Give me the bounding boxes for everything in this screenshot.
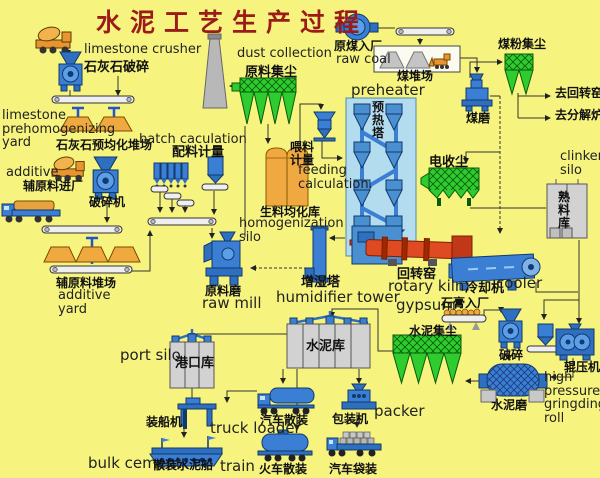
label-coal-dust-zh: 煤粉集尘	[498, 38, 546, 51]
label-raw-mill-en: raw mill	[202, 296, 262, 312]
label-homogenization-en: homogenization silo	[239, 217, 359, 244]
label-gypsum-crusher-zh: 破碎	[499, 349, 523, 362]
label-roller-press-en: high pressure gringding roll	[544, 371, 600, 426]
cement-mill-icon	[479, 364, 547, 402]
limestone-crusher-icon	[59, 52, 82, 91]
label-truck-bag-zh: 汽车袋装	[329, 463, 377, 476]
label-additive-yard-en: additive yard	[58, 289, 116, 316]
batch-bin-icon	[208, 157, 223, 183]
electrostatic-precipitator-icon	[421, 168, 479, 206]
label-additive-en: additive	[6, 166, 58, 180]
diagram-title: 水泥工艺生产过程	[96, 3, 368, 39]
gypsum-crusher-icon	[499, 309, 522, 348]
label-gypsum-zh: 石膏入厂	[441, 297, 489, 310]
label-raw-coal-zh: 原煤入厂	[334, 40, 382, 53]
label-additive-entry-zh: 辅原料进厂	[23, 180, 83, 193]
label-batch-calculation-zh: 配料计量	[172, 146, 224, 160]
label-feeding-en: feeding calculation.	[298, 164, 380, 191]
cement-process-diagram: 水泥工艺生产过程 limestone crusher 石灰石破碎 limesto…	[0, 0, 600, 478]
chimney-icon	[203, 34, 227, 108]
label-port-silo-zh: 港口库	[175, 357, 214, 371]
raw-dust-collector-icon	[232, 78, 296, 124]
label-limestone-crusher-zh: 石灰石破碎	[84, 61, 149, 75]
label-dust-collection-zh: 原料集尘	[245, 66, 297, 80]
label-dust-collection-en: dust collection	[237, 47, 332, 61]
label-to-rotary-kiln-zh: 去回转窑	[555, 87, 600, 100]
label-port-silo-en: port silo	[120, 348, 181, 364]
label-humidifier-en: humidifier tower	[276, 290, 400, 306]
label-ship-loader-zh: 装船机	[146, 416, 182, 429]
label-rotary-kiln-en: rotary kiln	[388, 279, 464, 295]
cement-dust-collector-icon	[393, 335, 461, 383]
label-additive-crusher-zh: 破碎机	[89, 196, 125, 209]
label-clinker-silo-en: clinker silo	[560, 150, 600, 177]
label-bulk-ship-zh: 散装水泥船	[153, 459, 213, 472]
label-ep-zh: 电收尘	[429, 156, 468, 170]
label-truck-bulk-zh: 汽车散装	[260, 414, 308, 427]
label-preheater-en: preheater	[351, 83, 425, 99]
mixer-truck-icon	[36, 25, 71, 54]
coal-mill-icon	[462, 74, 492, 111]
label-packer-en: packer	[374, 404, 425, 420]
label-to-calciner-zh: 去分解炉	[555, 109, 600, 122]
label-limestone-crusher-en: limestone crusher	[84, 43, 201, 57]
coal-dust-collector-icon	[505, 54, 533, 94]
label-cooler-en: cooler	[496, 276, 542, 292]
label-train-en: train	[220, 459, 255, 475]
packer-icon	[342, 384, 376, 409]
label-raw-coal-en: raw coal	[336, 53, 391, 67]
bulk-tanker-truck-icon	[258, 388, 314, 415]
bag-truck-icon	[327, 432, 381, 457]
label-clinker-silo-zh: 熟料库	[558, 191, 571, 231]
flatbed-truck-icon	[2, 201, 60, 223]
coal-conveyor-icon	[396, 28, 454, 35]
label-train-bulk-zh: 火车散装	[259, 463, 307, 476]
label-cement-silo-zh: 水泥库	[306, 340, 345, 354]
batch-bins-icon	[154, 163, 188, 188]
label-packer-zh: 包装机	[332, 413, 368, 426]
label-cement-dust-zh: 水泥集尘	[409, 325, 457, 338]
roller-press-icon	[556, 324, 594, 360]
label-coal-mill-zh: 煤磨	[466, 112, 490, 125]
label-preheater-zh: 预热塔	[372, 101, 385, 141]
conveyor-icon	[52, 96, 134, 103]
raw-mill-icon	[204, 232, 242, 285]
label-limestone-yard-zh: 石灰石预均化堆场	[56, 139, 152, 152]
feeding-hopper-icon	[314, 112, 335, 141]
additive-yard-icon	[42, 226, 140, 273]
additive-crusher-icon	[93, 157, 118, 199]
label-cement-mill-zh: 水泥磨	[491, 399, 527, 412]
